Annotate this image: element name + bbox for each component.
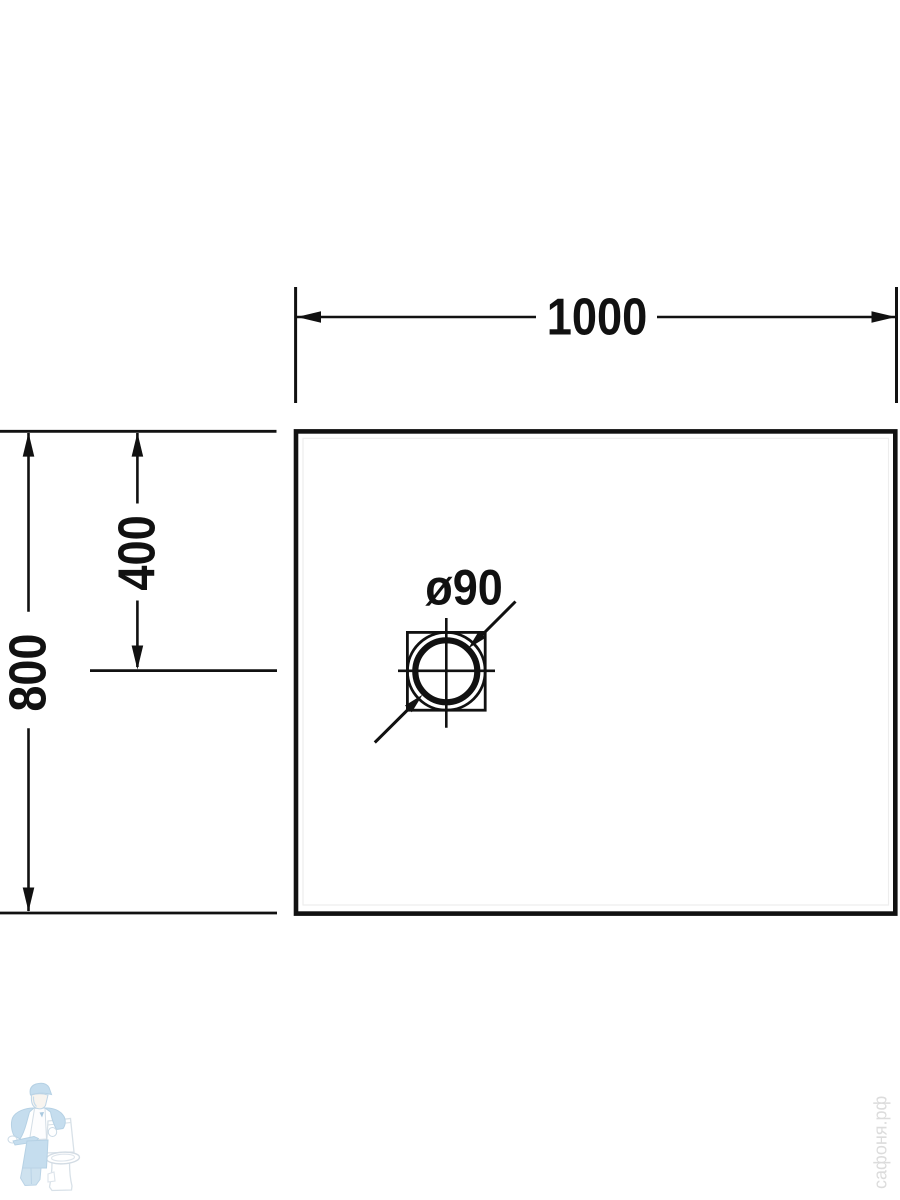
svg-text:ø90: ø90 [425,560,503,616]
svg-text:800: 800 [0,634,57,712]
svg-text:400: 400 [109,515,167,590]
svg-text:сафоня.рф: сафоня.рф [871,1095,891,1189]
svg-text:1000: 1000 [547,289,648,347]
